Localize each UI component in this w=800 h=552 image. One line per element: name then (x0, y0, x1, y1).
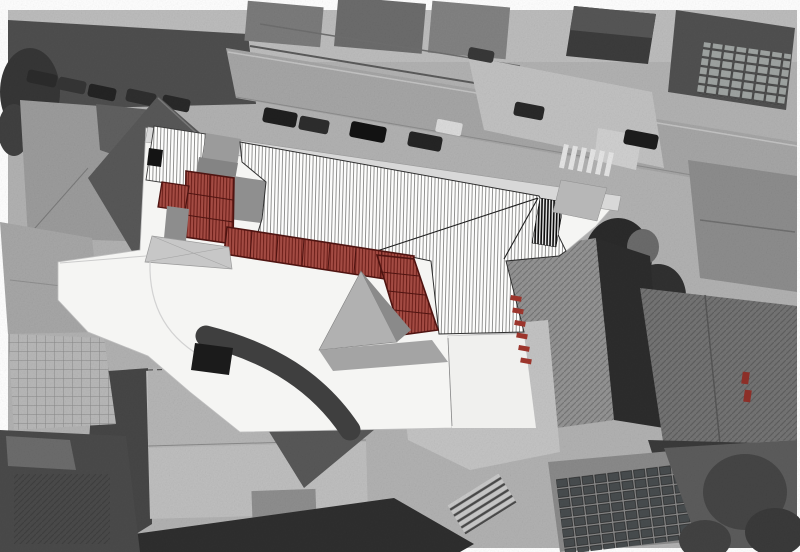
red-block-small (158, 182, 189, 211)
roof-north-a (244, 1, 323, 47)
roof-north-b (334, 0, 426, 54)
cobble-roof-west-grid (8, 334, 116, 430)
site-plan-aerial-view (0, 0, 800, 552)
black-rect-plaza (191, 343, 233, 375)
black-square-marker (147, 148, 163, 167)
screenshot-canvas (0, 0, 800, 552)
southwest-roof-light-strip (6, 436, 76, 470)
southwest-roof-texture (14, 474, 110, 544)
gray-column (164, 206, 189, 241)
